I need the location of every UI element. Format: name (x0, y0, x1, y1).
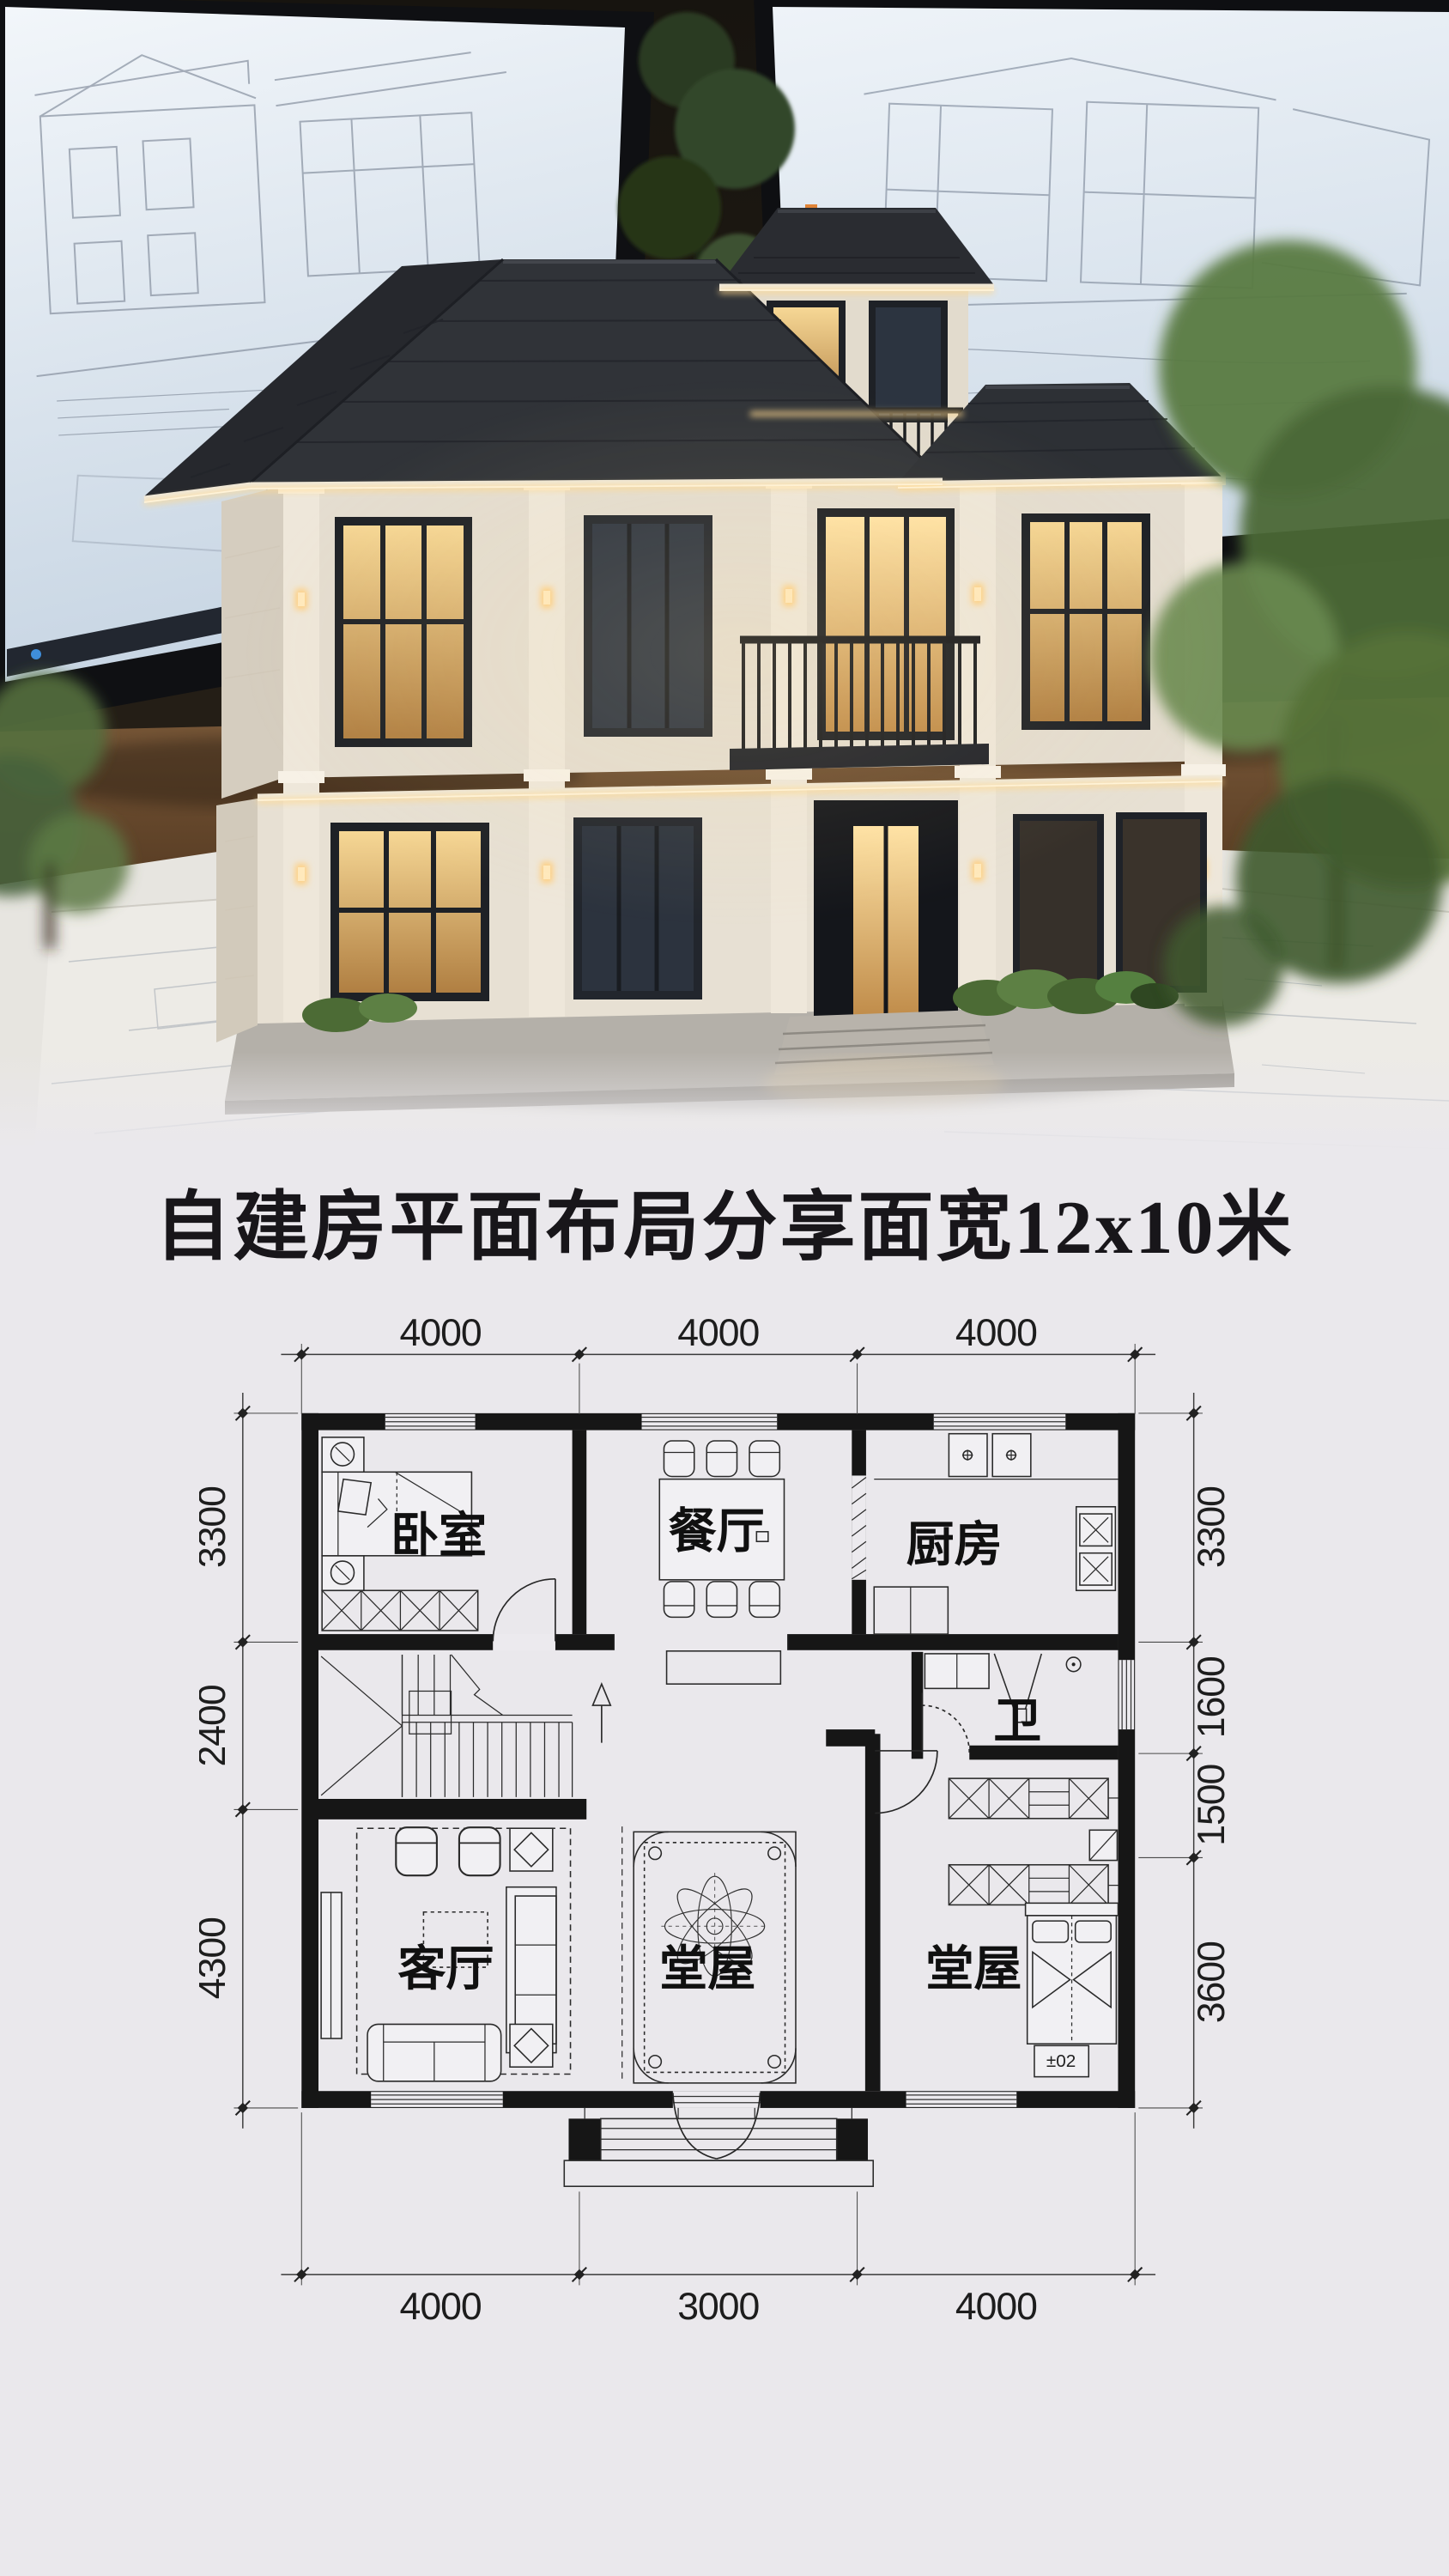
floor-plan-section: ±02 4000 4000 4000 4000 3000 4000 3300 2… (0, 1297, 1449, 2335)
page-title: 自建房平面布局分享面宽12x10米 (0, 1166, 1449, 1275)
staircase (321, 1655, 610, 1797)
dim-top-2: 4000 (677, 1312, 759, 1354)
stairs-up-arrow (592, 1684, 610, 1705)
doors (493, 1579, 969, 2159)
dim-right-2: 1600 (1191, 1656, 1233, 1738)
dim-bottom-1: 4000 (400, 2286, 482, 2328)
right-room-furniture: ±02 (949, 1778, 1118, 2076)
dim-left-2: 2400 (199, 1685, 233, 1766)
dim-bottom-3: 4000 (955, 2286, 1037, 2328)
os-logo-icon (31, 649, 41, 659)
model-photo (0, 0, 1449, 1151)
side-table (510, 2024, 553, 2067)
room-label-bedroom: 卧室 (391, 1509, 487, 1563)
dim-right-4: 3600 (1191, 1941, 1233, 2023)
dim-top-3: 4000 (955, 1312, 1037, 1354)
dimensions-left: 3300 2400 4300 (199, 1393, 298, 2129)
dim-right-3: 1500 (1191, 1764, 1233, 1845)
dimensions-top: 4000 4000 4000 (281, 1312, 1155, 1414)
porch-step (564, 2160, 873, 2186)
room-label-hall-center: 堂屋 (659, 1941, 755, 1996)
dim-left-3: 4300 (199, 1917, 233, 1999)
room-label-kitchen: 厨房 (906, 1517, 1003, 1571)
porch-column (568, 2118, 600, 2160)
porch-column (837, 2118, 868, 2160)
bedroom-door-arc (493, 1579, 555, 1642)
room-label-dining: 餐厅 (669, 1504, 765, 1558)
porch (564, 2108, 873, 2186)
dimensions-bottom: 4000 3000 4000 (281, 2112, 1155, 2328)
room-label-bath: 卫 (993, 1693, 1041, 1747)
dim-left-1: 3300 (199, 1486, 233, 1568)
room-label-living: 客厅 (397, 1941, 494, 1996)
bath-door-arc (922, 1705, 969, 1753)
floor-plan: ±02 4000 4000 4000 4000 3000 4000 3300 2… (199, 1297, 1250, 2335)
side-table (510, 1828, 553, 1871)
title-row: 自建房平面布局分享面宽12x10米 (0, 1166, 1449, 1275)
stove (1076, 1507, 1116, 1591)
hall-door-arc (875, 1751, 937, 1814)
dim-right-1: 3300 (1191, 1486, 1233, 1568)
nightstand-label: ±02 (1046, 2051, 1076, 2071)
room-label-hall-right: 堂屋 (925, 1941, 1022, 1996)
dim-top-1: 4000 (400, 1312, 482, 1354)
dim-bottom-2: 3000 (677, 2286, 759, 2328)
bed-headboard (1026, 1903, 1119, 1916)
dimensions-right: 3300 1600 1500 3600 (1138, 1393, 1233, 2129)
dining-opening-cabinet (667, 1651, 781, 1684)
